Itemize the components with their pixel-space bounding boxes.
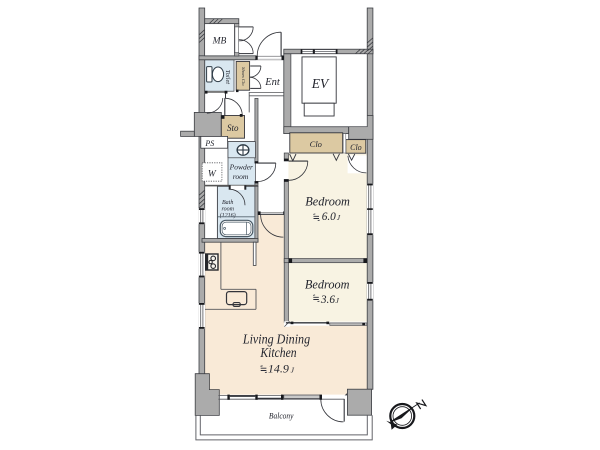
svg-text:Powder: Powder — [229, 162, 253, 171]
svg-text:Sto: Sto — [227, 123, 239, 133]
svg-text:6.0: 6.0 — [322, 211, 336, 223]
svg-text:Balcony: Balcony — [269, 410, 294, 420]
svg-text:room: room — [233, 172, 249, 181]
svg-text:14.9: 14.9 — [268, 361, 289, 375]
svg-text:Toilet: Toilet — [224, 70, 231, 85]
svg-text:PS: PS — [204, 139, 214, 148]
svg-text:W: W — [208, 170, 217, 180]
svg-text:Shoes Clo: Shoes Clo — [241, 67, 246, 86]
svg-text:(1216): (1216) — [220, 212, 236, 219]
svg-text:Bath: Bath — [222, 200, 233, 206]
svg-text:Bedroom: Bedroom — [305, 278, 350, 292]
svg-text:room: room — [221, 207, 234, 213]
svg-text:3.6: 3.6 — [320, 294, 335, 306]
svg-text:Ent: Ent — [264, 77, 281, 88]
svg-text:EV: EV — [311, 76, 330, 91]
svg-text:Bedroom: Bedroom — [305, 194, 350, 208]
svg-text:MB: MB — [212, 36, 227, 46]
svg-text:Kitchen: Kitchen — [260, 345, 297, 360]
svg-text:Clo: Clo — [310, 139, 322, 149]
svg-text:Clo: Clo — [350, 143, 362, 152]
